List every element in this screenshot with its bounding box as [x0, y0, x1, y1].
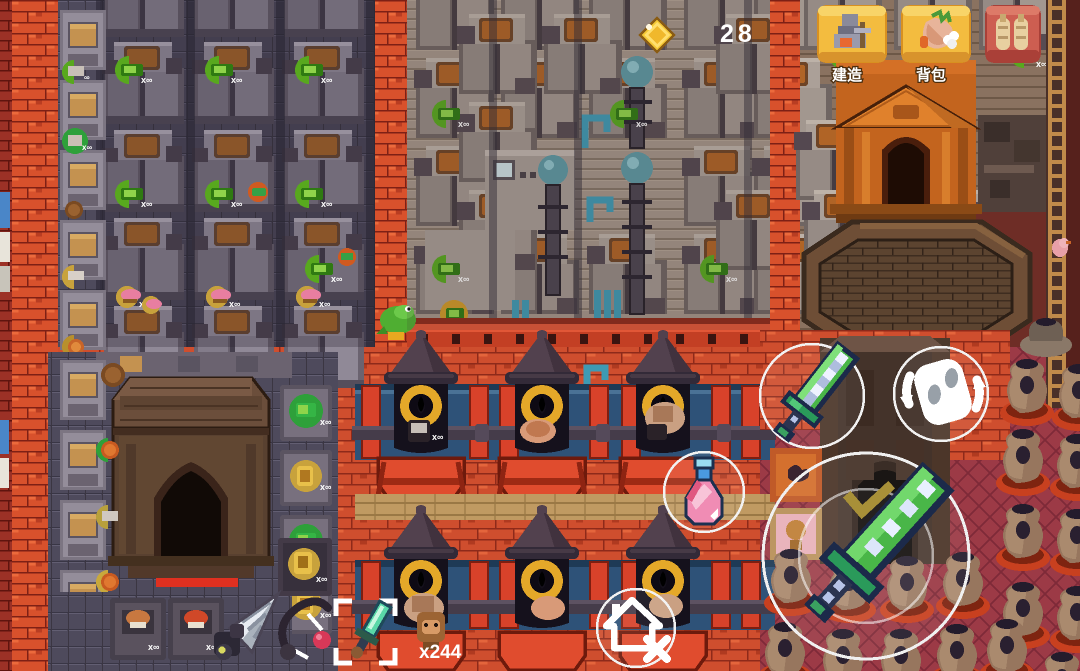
svg-text:x∞: x∞: [148, 642, 160, 652]
svg-text:建造: 建造: [832, 66, 862, 84]
svg-text:∞: ∞: [84, 73, 90, 82]
svg-text:x∞: x∞: [320, 482, 332, 492]
svg-text:x∞: x∞: [229, 299, 241, 309]
svg-text:x244: x244: [419, 642, 462, 663]
svg-text:x∞: x∞: [316, 574, 328, 584]
svg-text:x∞: x∞: [320, 417, 332, 427]
svg-text:x∞: x∞: [320, 610, 332, 620]
svg-text:28: 28: [720, 20, 756, 48]
svg-text:x∞: x∞: [82, 143, 92, 152]
svg-text:背包: 背包: [916, 66, 946, 84]
svg-text:x∞: x∞: [432, 432, 444, 442]
svg-text:x∞: x∞: [319, 299, 331, 309]
